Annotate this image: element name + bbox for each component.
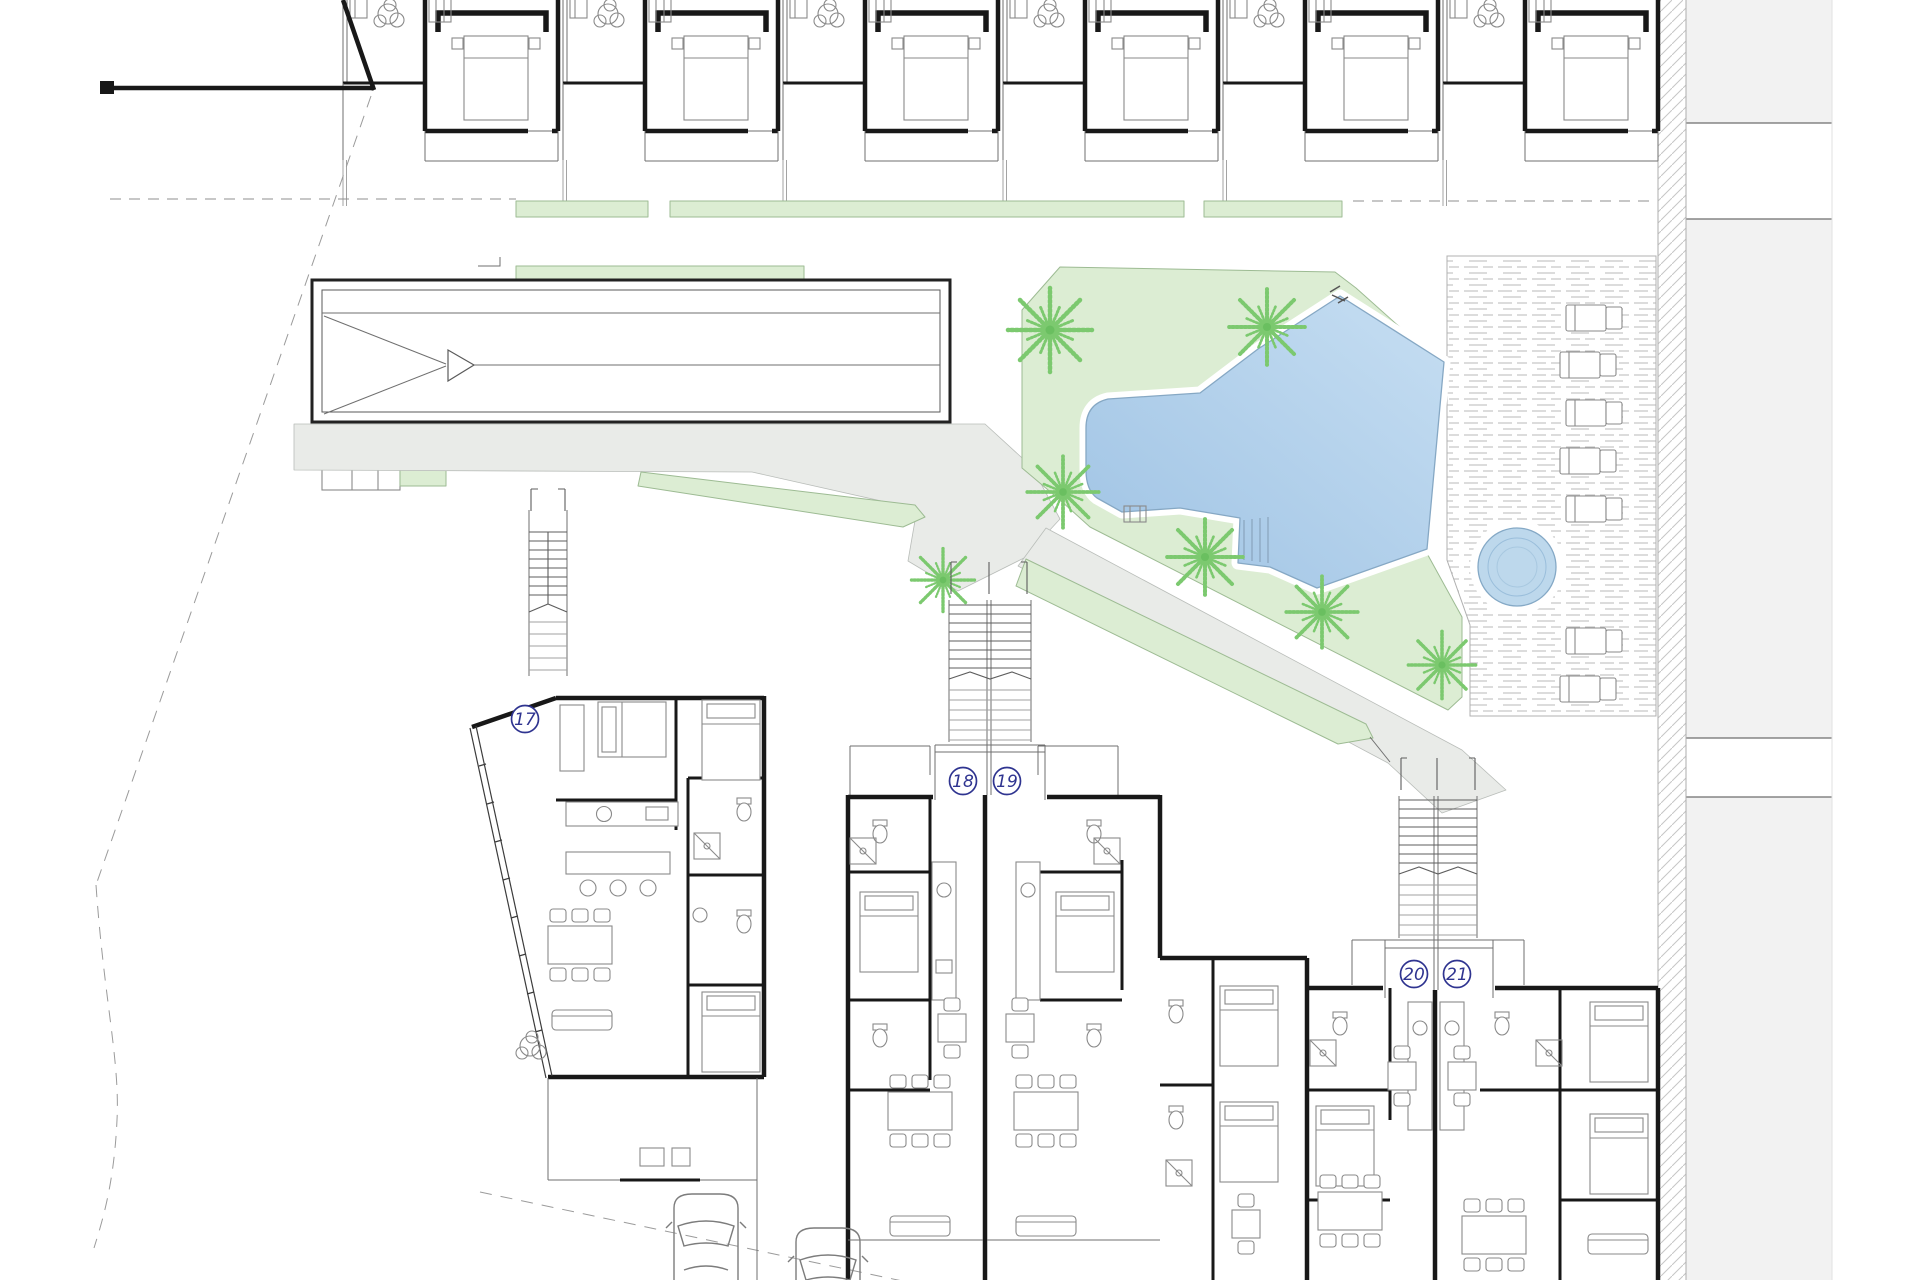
car-icon	[788, 1228, 868, 1280]
boundary-hatch	[1658, 0, 1686, 1280]
unit-label-21: 21	[1444, 961, 1471, 988]
glazed-west-wall	[470, 726, 552, 1078]
unit-20-number: 20	[1403, 965, 1425, 985]
units-20-21-plan	[1307, 940, 1658, 1280]
street-sidewalk	[1686, 0, 1832, 1280]
spa-jacuzzi	[1470, 520, 1564, 614]
unit-19-number: 19	[996, 772, 1018, 792]
stair-west	[529, 489, 567, 676]
unit-label-18: 18	[950, 768, 977, 795]
car-icon	[666, 1194, 746, 1280]
unit-21-number: 21	[1446, 965, 1468, 985]
unit-label-17: 17	[512, 706, 539, 733]
unit-18-number: 18	[952, 772, 974, 792]
sun-deck	[1447, 256, 1656, 716]
unit-label-20: 20	[1401, 961, 1428, 988]
main-walkway	[294, 424, 1060, 591]
unit-17-plan	[470, 696, 764, 1280]
unit-label-19: 19	[994, 768, 1021, 795]
top-units-row	[100, 0, 1658, 206]
unit-17-number: 17	[514, 710, 536, 730]
site-plan: 17 18 19 20 21	[0, 0, 1920, 1280]
units-18-19-plan	[848, 746, 1307, 1280]
